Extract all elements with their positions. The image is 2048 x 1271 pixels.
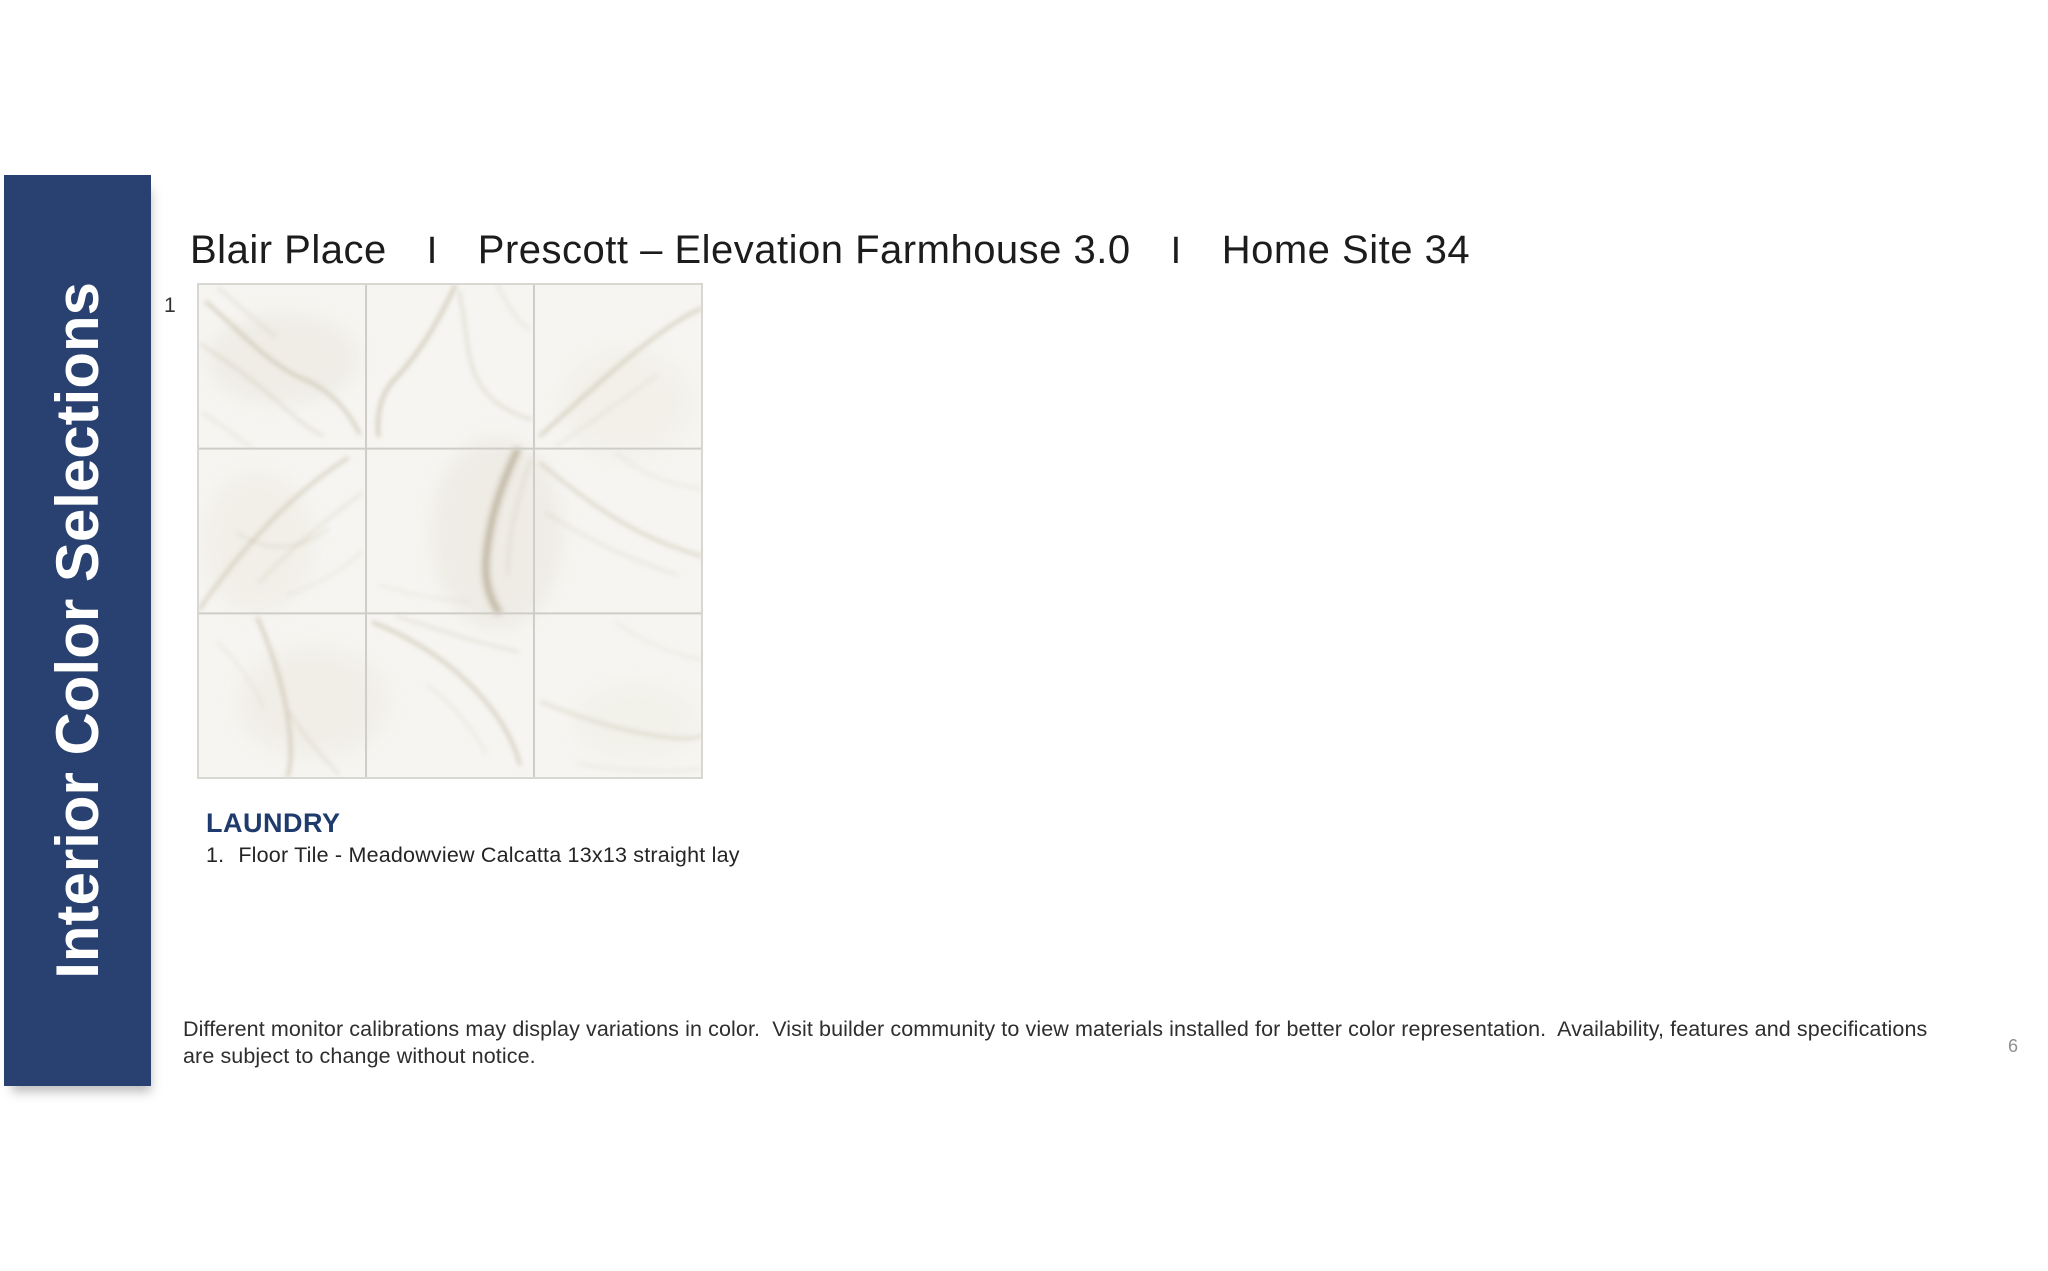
spec-item-index: 1. [206,843,224,868]
marble-tile-image [197,283,703,779]
disclaimer-text: Different monitor calibrations may displ… [183,1016,1963,1070]
spec-item-floor-tile: 1. Floor Tile - Meadowview Calcatta 13x1… [206,843,740,868]
title-separator: I [427,230,438,273]
title-plan-elevation: Prescott – Elevation Farmhouse 3.0 [478,228,1131,273]
title-community: Blair Place [190,228,387,273]
sidebar-banner: Interior Color Selections [4,175,151,1086]
marble-tile-svg [198,284,702,778]
spec-item-label: Floor Tile - Meadowview Calcatta 13x13 s… [238,843,739,868]
section-heading-laundry: LAUNDRY [206,808,341,839]
title-home-site: Home Site 34 [1222,228,1470,273]
page-number: 6 [2008,1036,2018,1057]
figure-number: 1 [164,294,176,318]
sidebar-title: Interior Color Selections [48,282,108,979]
page-title: Blair Place I Prescott – Elevation Farmh… [190,228,1470,273]
title-separator: I [1171,230,1182,273]
page: Interior Color Selections Blair Place I … [0,0,2048,1271]
